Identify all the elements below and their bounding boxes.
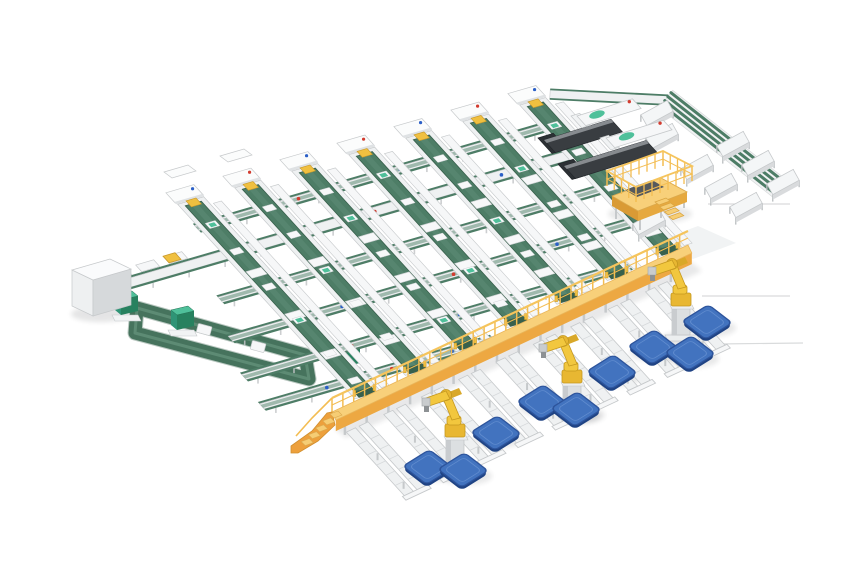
- machine-base: [168, 330, 197, 336]
- robot-pedestal-shade: [672, 307, 677, 335]
- line-leg: [246, 219, 248, 224]
- robot-base: [562, 370, 582, 383]
- spur-leg: [526, 383, 528, 390]
- line-sensor-dot: [500, 173, 504, 177]
- facility-scene: [0, 0, 860, 580]
- line-leg: [594, 197, 596, 202]
- line-leg: [512, 178, 514, 183]
- line-sensor-dot: [325, 386, 329, 390]
- robot-gripper: [541, 352, 546, 358]
- line-leg: [534, 136, 536, 141]
- spur-leg: [638, 330, 640, 337]
- line-leg: [275, 408, 277, 413]
- robot-base: [445, 424, 465, 437]
- line-sensor-dot: [452, 272, 456, 276]
- canopy-sensor-dot: [476, 105, 479, 108]
- scanner-status-dot: [658, 121, 661, 124]
- spur-leg: [664, 359, 666, 366]
- line-leg: [152, 283, 154, 288]
- factory-render-stage: [0, 0, 860, 580]
- line-leg: [332, 231, 334, 236]
- canopy-sensor-dot: [248, 171, 251, 174]
- upper-station-hood: [220, 149, 252, 162]
- strapping-machine: [168, 306, 197, 336]
- line-leg: [568, 246, 570, 251]
- line-leg: [234, 301, 236, 306]
- line-sensor-dot: [297, 197, 301, 201]
- canopy-sensor-dot: [419, 121, 422, 124]
- line-leg: [440, 199, 442, 204]
- line-leg: [224, 262, 226, 267]
- robot-base: [671, 293, 691, 306]
- control-cabinet: [72, 259, 131, 316]
- line-leg: [188, 272, 190, 277]
- spur-leg: [377, 453, 379, 460]
- line-leg: [486, 228, 488, 233]
- canopy-sensor-dot: [533, 88, 536, 91]
- line-leg: [244, 340, 246, 345]
- line-leg: [257, 379, 259, 384]
- line-leg: [388, 299, 390, 304]
- line-sensor-dot: [555, 242, 559, 246]
- lane-end-post: [404, 367, 407, 373]
- walkway-stairs-panel: [291, 412, 335, 453]
- spur-leg: [414, 436, 416, 443]
- line-leg: [414, 249, 416, 254]
- line-leg: [280, 330, 282, 335]
- robot-wrist: [539, 344, 547, 352]
- robot-gripper: [650, 275, 655, 281]
- spur-leg: [589, 394, 591, 401]
- canopy-sensor-dot: [362, 138, 365, 141]
- spur-leg: [489, 401, 491, 408]
- scanner-status-dot: [628, 100, 631, 103]
- spur-leg: [601, 348, 603, 355]
- robot-wrist: [422, 398, 430, 406]
- upper-station-hood: [164, 165, 196, 178]
- line-leg: [365, 347, 367, 352]
- line-leg: [293, 368, 295, 373]
- line-leg: [426, 167, 428, 172]
- canopy-sensor-dot: [191, 187, 194, 190]
- floor-guide-line: [716, 343, 803, 344]
- canopy-sensor-dot: [305, 154, 308, 157]
- robot-gripper: [424, 406, 429, 412]
- line-leg: [311, 398, 313, 403]
- machine-base: [112, 315, 141, 321]
- robot-wrist: [648, 267, 656, 275]
- line-leg: [306, 280, 308, 285]
- spur-leg: [403, 482, 405, 489]
- spur-leg: [477, 447, 479, 454]
